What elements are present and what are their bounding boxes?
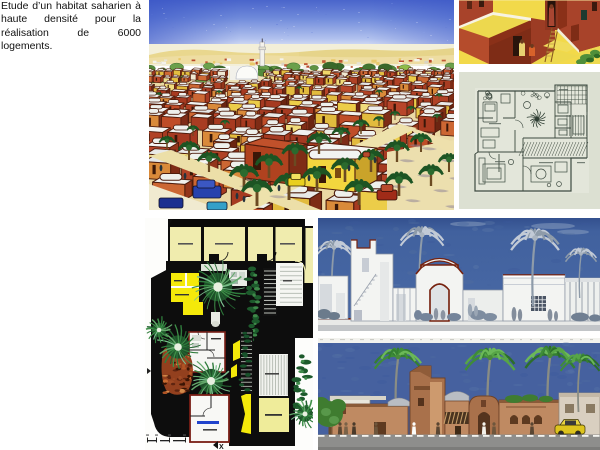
svg-text:X: X xyxy=(219,444,224,450)
